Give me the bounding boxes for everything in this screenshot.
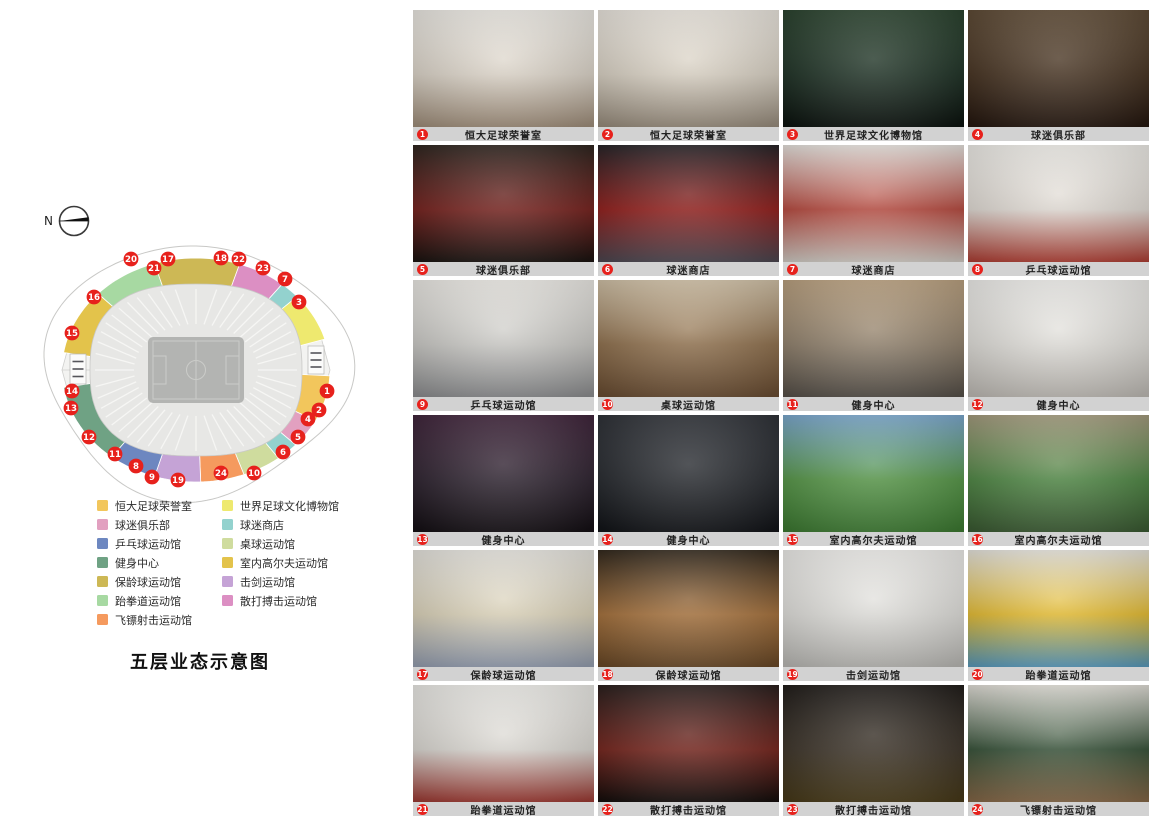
caption-label: 击剑运动馆	[846, 667, 901, 682]
legend-label: 室内高尔夫运动馆	[240, 555, 328, 571]
caption-label: 健身中心	[852, 397, 896, 412]
svg-text:24: 24	[215, 469, 227, 479]
gallery-item: 24飞镖射击运动馆	[968, 685, 1149, 816]
caption-number-badge: 19	[787, 669, 798, 680]
facility-photo	[598, 550, 779, 667]
plan-marker: 12	[82, 430, 97, 445]
caption-number-badge: 18	[602, 669, 613, 680]
facility-photo	[783, 10, 964, 127]
plan-marker: 22	[232, 252, 247, 267]
svg-text:17: 17	[162, 255, 174, 265]
facility-photo	[598, 280, 779, 397]
caption-label: 乒乓球运动馆	[471, 397, 537, 412]
legend-label: 恒大足球荣誉室	[115, 498, 192, 514]
photo-caption: 3世界足球文化博物馆	[783, 127, 964, 141]
legend-label: 桌球运动馆	[240, 536, 295, 552]
facility-photo	[598, 145, 779, 262]
photo-caption: 14健身中心	[598, 532, 779, 546]
plan-marker: 23	[256, 261, 271, 276]
svg-text:22: 22	[233, 255, 245, 265]
plan-marker: 9	[145, 470, 160, 485]
caption-label: 球迷商店	[852, 262, 896, 277]
gallery-item: 21跆拳道运动馆	[413, 685, 594, 816]
photo-caption: 19击剑运动馆	[783, 667, 964, 681]
caption-label: 散打搏击运动馆	[650, 802, 727, 817]
photo-caption: 1恒大足球荣誉室	[413, 127, 594, 141]
legend-item: 恒大足球荣誉室	[97, 500, 192, 511]
plan-marker: 5	[291, 430, 306, 445]
legend-color-swatch	[97, 538, 108, 549]
facility-photo	[598, 415, 779, 532]
gallery-item: 17保龄球运动馆	[413, 550, 594, 681]
facility-photo	[783, 145, 964, 262]
floor-plan-panel: N 12345678910111213141516171819202122232…	[0, 0, 413, 823]
floor-plan-svg: 123456789101112131415161718192021222324	[36, 240, 356, 510]
photo-caption: 8乒乓球运动馆	[968, 262, 1149, 276]
svg-text:3: 3	[296, 298, 302, 308]
caption-label: 健身中心	[667, 532, 711, 547]
caption-label: 恒大足球荣誉室	[650, 127, 727, 142]
legend-color-swatch	[97, 500, 108, 511]
caption-number-badge: 23	[787, 804, 798, 815]
facility-photo	[968, 550, 1149, 667]
gallery-item: 1恒大足球荣誉室	[413, 10, 594, 141]
photo-caption: 2恒大足球荣誉室	[598, 127, 779, 141]
gallery-item: 16室内高尔夫运动馆	[968, 415, 1149, 546]
caption-number-badge: 7	[787, 264, 798, 275]
legend-label: 球迷商店	[240, 517, 284, 533]
photo-caption: 24飞镖射击运动馆	[968, 802, 1149, 816]
photo-caption: 22散打搏击运动馆	[598, 802, 779, 816]
gallery-item: 7球迷商店	[783, 145, 964, 276]
svg-text:12: 12	[83, 433, 95, 443]
plan-marker: 11	[108, 447, 123, 462]
legend-color-swatch	[97, 557, 108, 568]
photo-caption: 7球迷商店	[783, 262, 964, 276]
legend-label: 散打搏击运动馆	[240, 593, 317, 609]
caption-number-badge: 14	[602, 534, 613, 545]
svg-text:23: 23	[257, 264, 269, 274]
gallery-item: 22散打搏击运动馆	[598, 685, 779, 816]
legend-color-swatch	[222, 576, 233, 587]
photo-caption: 15室内高尔夫运动馆	[783, 532, 964, 546]
caption-label: 散打搏击运动馆	[835, 802, 912, 817]
gallery-item: 12健身中心	[968, 280, 1149, 411]
legend-color-swatch	[222, 519, 233, 530]
plan-marker: 24	[214, 466, 229, 481]
legend-column: 世界足球文化博物馆球迷商店桌球运动馆室内高尔夫运动馆击剑运动馆散打搏击运动馆	[222, 500, 339, 625]
gallery-item: 3世界足球文化博物馆	[783, 10, 964, 141]
svg-text:21: 21	[148, 264, 160, 274]
legend-color-swatch	[97, 595, 108, 606]
svg-text:18: 18	[215, 254, 227, 264]
caption-label: 球迷俱乐部	[476, 262, 531, 277]
caption-number-badge: 24	[972, 804, 983, 815]
svg-text:13: 13	[65, 404, 77, 414]
legend-item: 保龄球运动馆	[97, 576, 192, 587]
photo-caption: 12健身中心	[968, 397, 1149, 411]
legend-item: 健身中心	[97, 557, 192, 568]
gallery-item: 23散打搏击运动馆	[783, 685, 964, 816]
facility-photo	[598, 685, 779, 802]
legend-item: 散打搏击运动馆	[222, 595, 339, 606]
caption-number-badge: 5	[417, 264, 428, 275]
legend-item: 球迷商店	[222, 519, 339, 530]
gallery-item: 4球迷俱乐部	[968, 10, 1149, 141]
gallery-item: 18保龄球运动馆	[598, 550, 779, 681]
legend-item: 跆拳道运动馆	[97, 595, 192, 606]
facility-photo	[783, 280, 964, 397]
facility-photo	[968, 685, 1149, 802]
caption-number-badge: 11	[787, 399, 798, 410]
svg-text:10: 10	[248, 469, 260, 479]
photo-caption: 10桌球运动馆	[598, 397, 779, 411]
plan-marker: 20	[124, 252, 139, 267]
legend-item: 击剑运动馆	[222, 576, 339, 587]
caption-label: 保龄球运动馆	[471, 667, 537, 682]
plan-marker: 17	[161, 252, 176, 267]
svg-text:11: 11	[109, 450, 121, 460]
legend: 恒大足球荣誉室球迷俱乐部乒乓球运动馆健身中心保龄球运动馆跆拳道运动馆飞镖射击运动…	[97, 500, 339, 625]
legend-label: 世界足球文化博物馆	[240, 498, 339, 514]
caption-label: 保龄球运动馆	[656, 667, 722, 682]
plan-marker: 7	[278, 272, 293, 287]
caption-number-badge: 12	[972, 399, 983, 410]
caption-number-badge: 21	[417, 804, 428, 815]
photo-caption: 20跆拳道运动馆	[968, 667, 1149, 681]
legend-label: 乒乓球运动馆	[115, 536, 181, 552]
photo-caption: 18保龄球运动馆	[598, 667, 779, 681]
facility-photo	[413, 415, 594, 532]
svg-text:20: 20	[125, 255, 137, 265]
legend-color-swatch	[222, 595, 233, 606]
caption-number-badge: 10	[602, 399, 613, 410]
gallery-item: 15室内高尔夫运动馆	[783, 415, 964, 546]
caption-number-badge: 17	[417, 669, 428, 680]
facility-photo	[783, 550, 964, 667]
caption-label: 飞镖射击运动馆	[1020, 802, 1097, 817]
north-compass: N	[44, 204, 91, 238]
caption-number-badge: 15	[787, 534, 798, 545]
photo-caption: 5球迷俱乐部	[413, 262, 594, 276]
photo-caption: 4球迷俱乐部	[968, 127, 1149, 141]
page-title: 五层业态示意图	[0, 648, 400, 674]
photo-caption: 23散打搏击运动馆	[783, 802, 964, 816]
legend-color-swatch	[222, 557, 233, 568]
compass-icon	[57, 204, 91, 238]
gallery-item: 5球迷俱乐部	[413, 145, 594, 276]
gallery-item: 9乒乓球运动馆	[413, 280, 594, 411]
photo-caption: 13健身中心	[413, 532, 594, 546]
gallery-item: 6球迷商店	[598, 145, 779, 276]
plan-marker: 10	[247, 466, 262, 481]
plan-marker: 14	[65, 384, 80, 399]
legend-color-swatch	[97, 614, 108, 625]
photo-caption: 6球迷商店	[598, 262, 779, 276]
caption-label: 跆拳道运动馆	[1026, 667, 1092, 682]
legend-label: 保龄球运动馆	[115, 574, 181, 590]
plan-marker: 15	[65, 326, 80, 341]
photo-caption: 11健身中心	[783, 397, 964, 411]
svg-text:2: 2	[316, 406, 322, 416]
legend-color-swatch	[97, 519, 108, 530]
photo-caption: 21跆拳道运动馆	[413, 802, 594, 816]
plan-marker: 8	[129, 459, 144, 474]
legend-label: 球迷俱乐部	[115, 517, 170, 533]
caption-label: 健身中心	[482, 532, 526, 547]
caption-number-badge: 16	[972, 534, 983, 545]
caption-number-badge: 3	[787, 129, 798, 140]
facility-photo	[783, 415, 964, 532]
facility-photo	[783, 685, 964, 802]
legend-item: 乒乓球运动馆	[97, 538, 192, 549]
caption-label: 球迷俱乐部	[1031, 127, 1086, 142]
caption-label: 球迷商店	[667, 262, 711, 277]
plan-marker: 4	[301, 412, 316, 427]
caption-label: 恒大足球荣誉室	[465, 127, 542, 142]
caption-number-badge: 1	[417, 129, 428, 140]
legend-column: 恒大足球荣誉室球迷俱乐部乒乓球运动馆健身中心保龄球运动馆跆拳道运动馆飞镖射击运动…	[97, 500, 192, 625]
caption-label: 室内高尔夫运动馆	[1015, 532, 1103, 547]
caption-label: 乒乓球运动馆	[1026, 262, 1092, 277]
svg-text:7: 7	[282, 275, 288, 285]
facility-photo	[413, 685, 594, 802]
svg-text:8: 8	[133, 462, 139, 472]
photo-caption: 16室内高尔夫运动馆	[968, 532, 1149, 546]
legend-color-swatch	[222, 538, 233, 549]
caption-label: 桌球运动馆	[661, 397, 716, 412]
legend-label: 击剑运动馆	[240, 574, 295, 590]
gallery-item: 14健身中心	[598, 415, 779, 546]
facility-photo	[968, 280, 1149, 397]
facility-photo	[413, 145, 594, 262]
north-label: N	[44, 214, 53, 228]
stadium-floor-plan: 123456789101112131415161718192021222324	[36, 240, 356, 510]
plan-marker: 18	[214, 251, 229, 266]
svg-text:1: 1	[324, 387, 330, 397]
facility-photo	[413, 280, 594, 397]
plan-marker: 6	[276, 445, 291, 460]
legend-color-swatch	[97, 576, 108, 587]
caption-label: 世界足球文化博物馆	[824, 127, 923, 142]
legend-item: 球迷俱乐部	[97, 519, 192, 530]
caption-label: 跆拳道运动馆	[471, 802, 537, 817]
photo-caption: 9乒乓球运动馆	[413, 397, 594, 411]
legend-item: 室内高尔夫运动馆	[222, 557, 339, 568]
caption-number-badge: 4	[972, 129, 983, 140]
facility-photo	[968, 10, 1149, 127]
plan-marker: 16	[87, 290, 102, 305]
legend-label: 跆拳道运动馆	[115, 593, 181, 609]
caption-number-badge: 2	[602, 129, 613, 140]
legend-item: 飞镖射击运动馆	[97, 614, 192, 625]
svg-text:15: 15	[66, 329, 78, 339]
gallery-item: 19击剑运动馆	[783, 550, 964, 681]
svg-text:9: 9	[149, 473, 155, 483]
gallery-item: 2恒大足球荣誉室	[598, 10, 779, 141]
caption-number-badge: 8	[972, 264, 983, 275]
svg-text:19: 19	[172, 476, 184, 486]
caption-number-badge: 9	[417, 399, 428, 410]
svg-text:5: 5	[295, 433, 301, 443]
svg-text:16: 16	[88, 293, 100, 303]
caption-number-badge: 20	[972, 669, 983, 680]
caption-label: 室内高尔夫运动馆	[830, 532, 918, 547]
facility-photo	[968, 145, 1149, 262]
plan-marker: 19	[171, 473, 186, 488]
plan-marker: 3	[292, 295, 307, 310]
legend-label: 飞镖射击运动馆	[115, 612, 192, 628]
plan-marker: 13	[64, 401, 79, 416]
gallery: 1恒大足球荣誉室2恒大足球荣誉室3世界足球文化博物馆4球迷俱乐部5球迷俱乐部6球…	[413, 10, 1149, 816]
gallery-item: 8乒乓球运动馆	[968, 145, 1149, 276]
facility-photo	[413, 10, 594, 127]
legend-item: 桌球运动馆	[222, 538, 339, 549]
caption-number-badge: 6	[602, 264, 613, 275]
gallery-item: 11健身中心	[783, 280, 964, 411]
gallery-item: 20跆拳道运动馆	[968, 550, 1149, 681]
facility-photo	[598, 10, 779, 127]
gallery-item: 10桌球运动馆	[598, 280, 779, 411]
caption-number-badge: 22	[602, 804, 613, 815]
facility-photo	[413, 550, 594, 667]
svg-text:6: 6	[280, 448, 286, 458]
legend-color-swatch	[222, 500, 233, 511]
facility-photo	[968, 415, 1149, 532]
plan-marker: 21	[147, 261, 162, 276]
svg-text:4: 4	[305, 415, 311, 425]
svg-text:14: 14	[66, 387, 78, 397]
legend-label: 健身中心	[115, 555, 159, 571]
photo-caption: 17保龄球运动馆	[413, 667, 594, 681]
caption-label: 健身中心	[1037, 397, 1081, 412]
gallery-item: 13健身中心	[413, 415, 594, 546]
legend-item: 世界足球文化博物馆	[222, 500, 339, 511]
caption-number-badge: 13	[417, 534, 428, 545]
plan-marker: 1	[320, 384, 335, 399]
